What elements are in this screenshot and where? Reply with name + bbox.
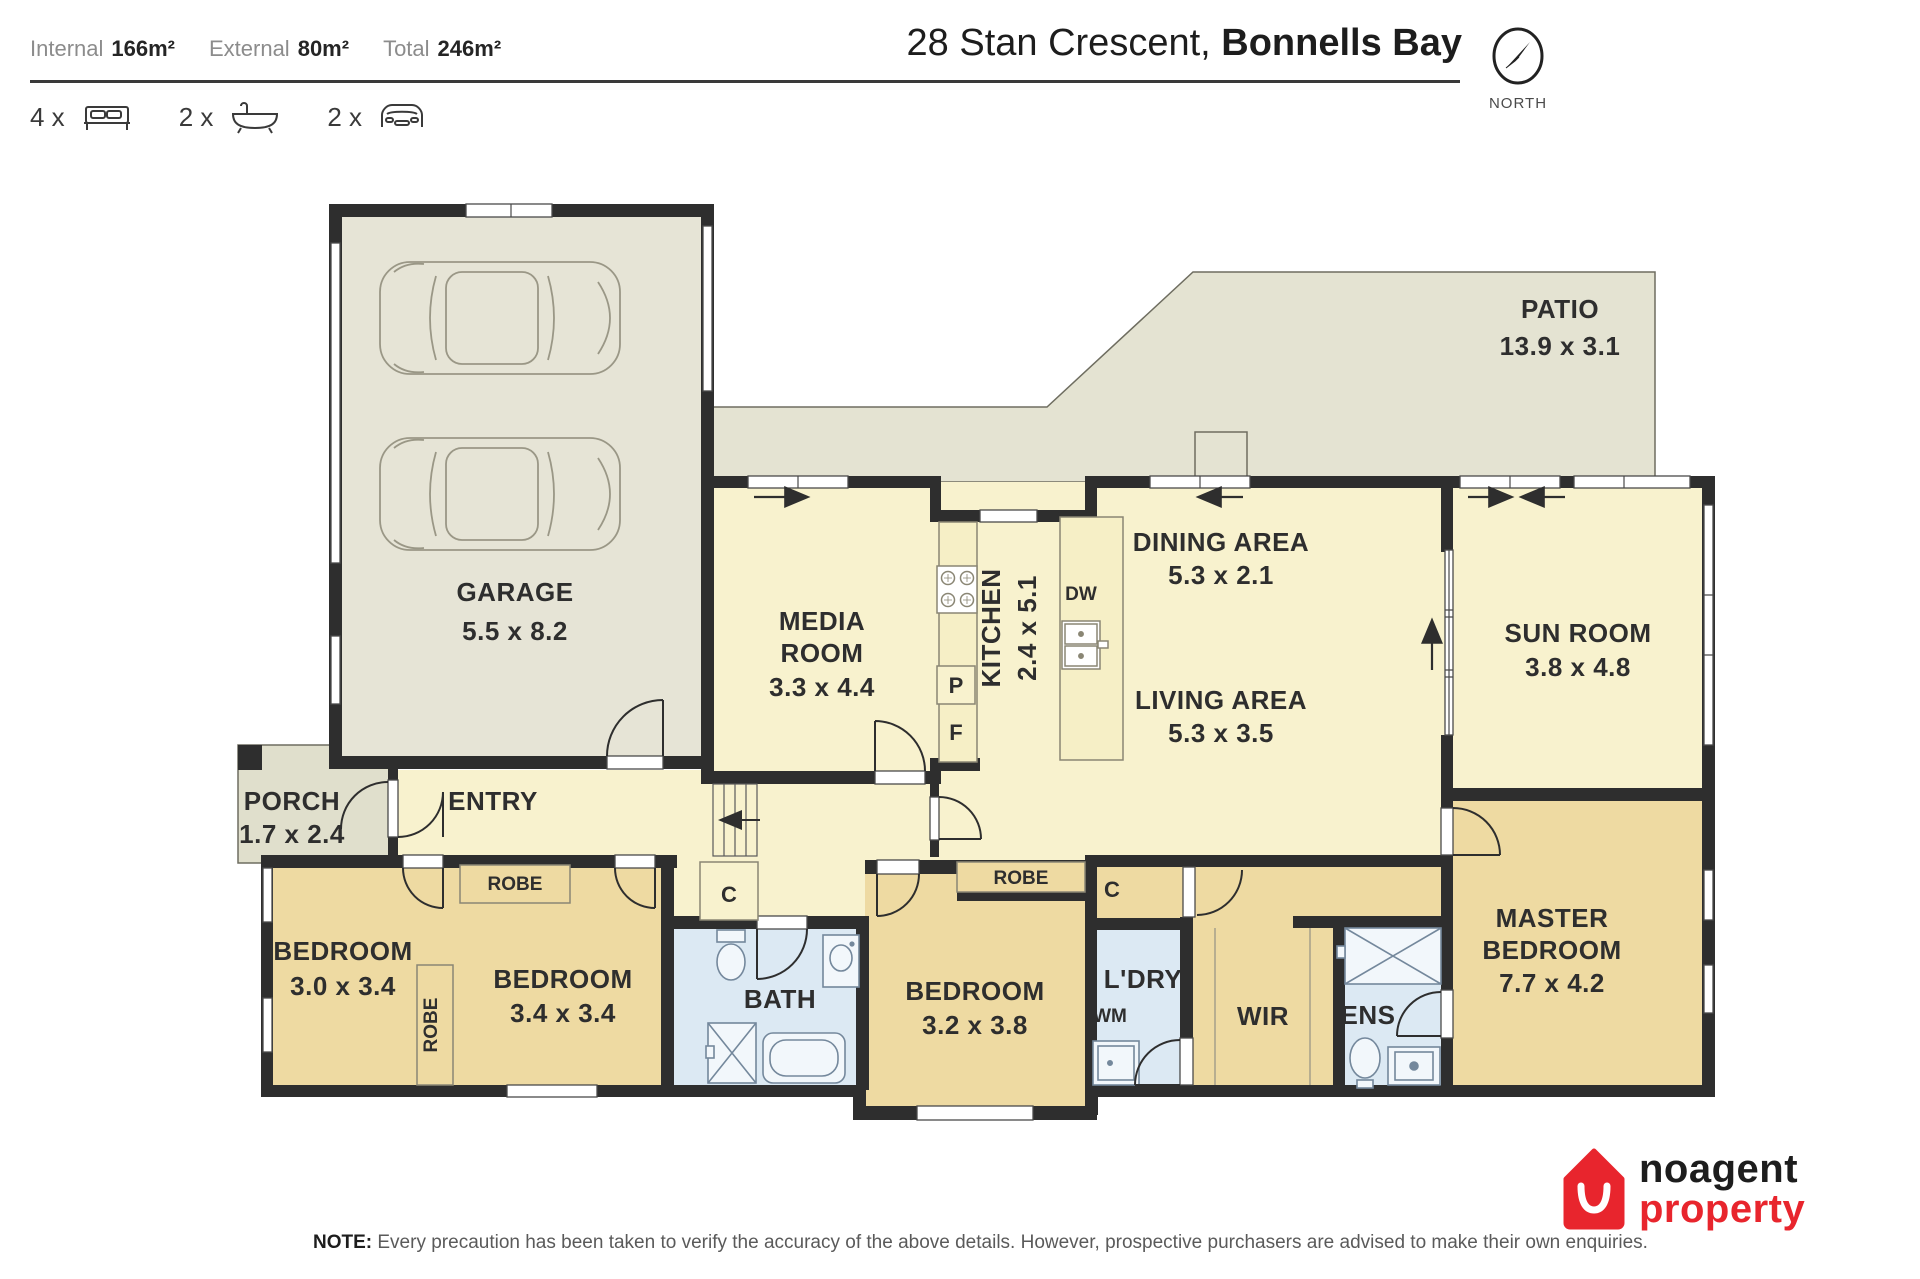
cupboard-label-2: C bbox=[1104, 877, 1120, 902]
robe-label-bed2: ROBE bbox=[488, 874, 543, 895]
garage-dims: 5.5 x 8.2 bbox=[462, 616, 568, 646]
laundry-fixtures bbox=[1093, 1041, 1139, 1085]
dining-dims: 5.3 x 2.1 bbox=[1168, 560, 1274, 590]
pantry-label: P bbox=[949, 673, 964, 698]
sunroom-label: SUN ROOM bbox=[1505, 618, 1652, 648]
ens-label: ENS bbox=[1341, 1000, 1396, 1030]
stairs bbox=[713, 784, 760, 856]
dining-label: DINING AREA bbox=[1133, 527, 1309, 557]
bedroom2-dims: 3.4 x 3.4 bbox=[510, 998, 616, 1028]
patio-label: PATIO bbox=[1521, 294, 1599, 324]
cupboard-label-1: C bbox=[721, 882, 737, 907]
entry-label: ENTRY bbox=[448, 786, 538, 816]
garage-floor bbox=[335, 210, 707, 765]
media-label-2: ROOM bbox=[781, 638, 864, 668]
media-label-1: MEDIA bbox=[779, 606, 865, 636]
hall-floor2 bbox=[667, 855, 877, 925]
logo-line1: noagent bbox=[1639, 1149, 1805, 1189]
robe-label-vertical: ROBE bbox=[421, 998, 442, 1053]
fridge-label: F bbox=[949, 720, 962, 745]
kitchen-dims: 2.4 x 5.1 bbox=[1012, 575, 1042, 681]
kitchen-label: KITCHEN bbox=[976, 568, 1006, 687]
logo-house-icon bbox=[1563, 1148, 1625, 1230]
disclaimer-note: NOTE: Every precaution has been taken to… bbox=[313, 1232, 1648, 1254]
floor-plan: GARAGE 5.5 x 8.2 PATIO 13.9 x 3.1 PORCH … bbox=[0, 0, 1920, 1279]
note-text: Every precaution has been taken to verif… bbox=[372, 1232, 1648, 1253]
bedroom2-label: BEDROOM bbox=[493, 964, 632, 994]
master-label-1: MASTER bbox=[1496, 903, 1609, 933]
living-label: LIVING AREA bbox=[1135, 685, 1307, 715]
wir-label: WIR bbox=[1237, 1001, 1289, 1031]
stove bbox=[937, 566, 977, 613]
garage-label: GARAGE bbox=[456, 577, 573, 607]
wm-label: WM bbox=[1093, 1006, 1127, 1027]
bedroom1-label: BEDROOM bbox=[273, 936, 412, 966]
porch-label: PORCH bbox=[244, 786, 340, 816]
bedroom3-dims: 3.2 x 3.8 bbox=[922, 1010, 1028, 1040]
patio-floor bbox=[713, 272, 1655, 482]
patio-step bbox=[1195, 432, 1247, 478]
laundry-label: L'DRY bbox=[1104, 964, 1183, 994]
master-label-2: BEDROOM bbox=[1482, 935, 1621, 965]
dishwasher-label: DW bbox=[1065, 584, 1097, 605]
floorplan-page: Internal166m²External80m²Total246m² 4 x … bbox=[0, 0, 1920, 1279]
sunroom-dims: 3.8 x 4.8 bbox=[1525, 652, 1631, 682]
patio-dims: 13.9 x 3.1 bbox=[1500, 331, 1621, 361]
logo-line2: property bbox=[1639, 1189, 1805, 1229]
bedroom1-dims: 3.0 x 3.4 bbox=[290, 971, 396, 1001]
bedroom3-label: BEDROOM bbox=[905, 976, 1044, 1006]
robe-label-bed3: ROBE bbox=[994, 868, 1049, 889]
master-dims: 7.7 x 4.2 bbox=[1499, 968, 1605, 998]
media-dims: 3.3 x 4.4 bbox=[769, 672, 875, 702]
living-dims: 5.3 x 3.5 bbox=[1168, 718, 1274, 748]
bath-label: BATH bbox=[744, 984, 816, 1014]
agency-logo: noagent property bbox=[1563, 1148, 1805, 1230]
porch-dims: 1.7 x 2.4 bbox=[239, 819, 345, 849]
note-label: NOTE: bbox=[313, 1232, 372, 1253]
